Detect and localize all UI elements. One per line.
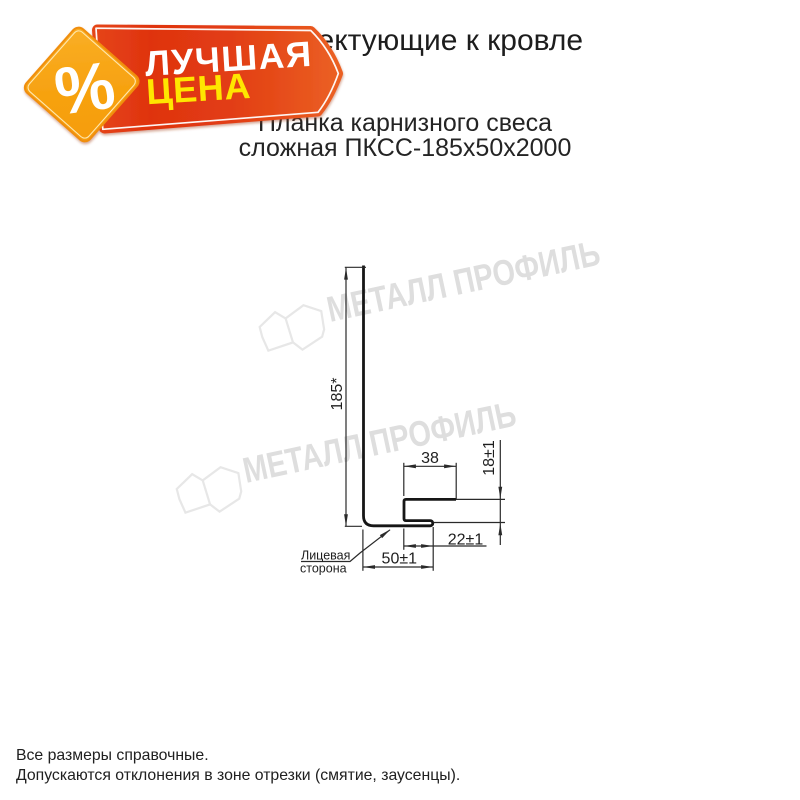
svg-text:МЕТАЛЛ ПРОФИЛЬ: МЕТАЛЛ ПРОФИЛЬ xyxy=(323,232,603,330)
svg-text:МЕТАЛЛ ПРОФИЛЬ: МЕТАЛЛ ПРОФИЛЬ xyxy=(239,393,519,491)
svg-text:18±1: 18±1 xyxy=(481,440,498,476)
svg-text:38: 38 xyxy=(421,450,439,467)
svg-text:%: % xyxy=(50,47,119,130)
svg-text:50±1: 50±1 xyxy=(382,551,418,568)
svg-text:ЦЕНА: ЦЕНА xyxy=(145,65,252,112)
svg-text:22±1: 22±1 xyxy=(448,531,484,548)
svg-text:185*: 185* xyxy=(329,378,346,411)
svg-text:Лицевая: Лицевая xyxy=(301,549,350,563)
svg-text:сторона: сторона xyxy=(300,562,347,576)
